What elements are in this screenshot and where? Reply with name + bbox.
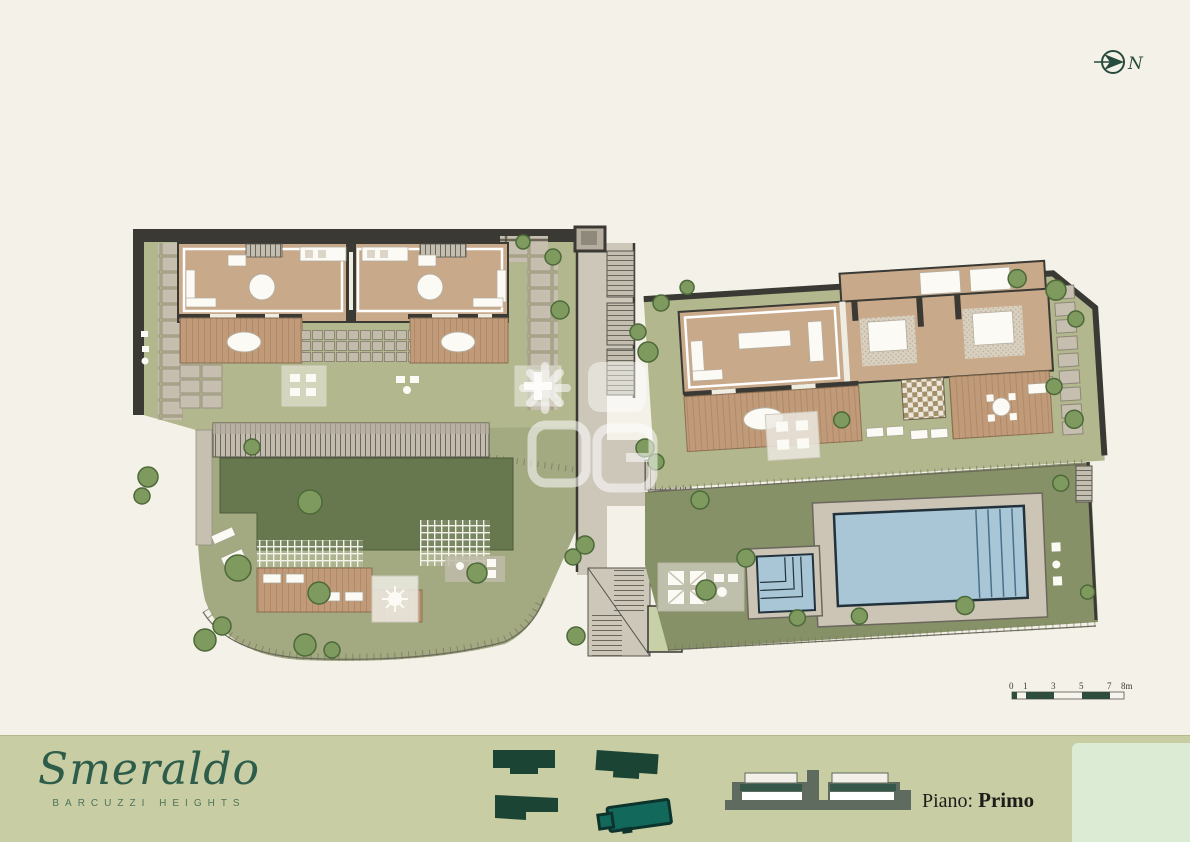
site-plan: N 0 1 3 5 7 8m bbox=[0, 0, 1190, 735]
keyplan-building-3 bbox=[495, 795, 558, 820]
scale-tick: 5 bbox=[1079, 681, 1084, 691]
floor-value: Primo bbox=[978, 788, 1034, 812]
floor-indicator: Piano: Primo bbox=[922, 788, 1034, 813]
scale-bar: 0 1 3 5 7 8m bbox=[1009, 681, 1133, 699]
scale-tick: 7 bbox=[1107, 681, 1112, 691]
keyplan-building-2 bbox=[595, 750, 659, 780]
footer-side-panel bbox=[1072, 743, 1190, 842]
keyplan-building-4-active bbox=[597, 799, 672, 837]
north-label: N bbox=[1127, 54, 1144, 74]
scale-tick: 1 bbox=[1023, 681, 1028, 691]
floor-label: Piano: bbox=[922, 790, 973, 812]
building-section-diagram bbox=[712, 754, 922, 814]
pool-area bbox=[645, 462, 1098, 650]
scale-tick: 8m bbox=[1121, 681, 1133, 691]
brand-logo: Smeraldo BARCUZZI HEIGHTS bbox=[24, 744, 274, 809]
stairs-lower bbox=[588, 568, 650, 656]
floorplan-page: { "north_indicator": { "label": "N" }, "… bbox=[0, 0, 1190, 841]
scale-tick: 3 bbox=[1051, 681, 1056, 691]
site-plan-drawing: N 0 1 3 5 7 8m bbox=[0, 0, 1190, 735]
footer-band: Smeraldo BARCUZZI HEIGHTS Piano: bbox=[0, 735, 1190, 842]
north-arrow-icon: N bbox=[1094, 51, 1144, 74]
scale-tick: 0 bbox=[1009, 681, 1014, 691]
right-building-block bbox=[643, 255, 1105, 489]
keyplan-shapes bbox=[470, 742, 700, 838]
brand-subtitle: BARCUZZI HEIGHTS bbox=[24, 798, 274, 809]
brand-name: Smeraldo bbox=[24, 744, 274, 796]
keyplan-building-1 bbox=[493, 750, 555, 774]
